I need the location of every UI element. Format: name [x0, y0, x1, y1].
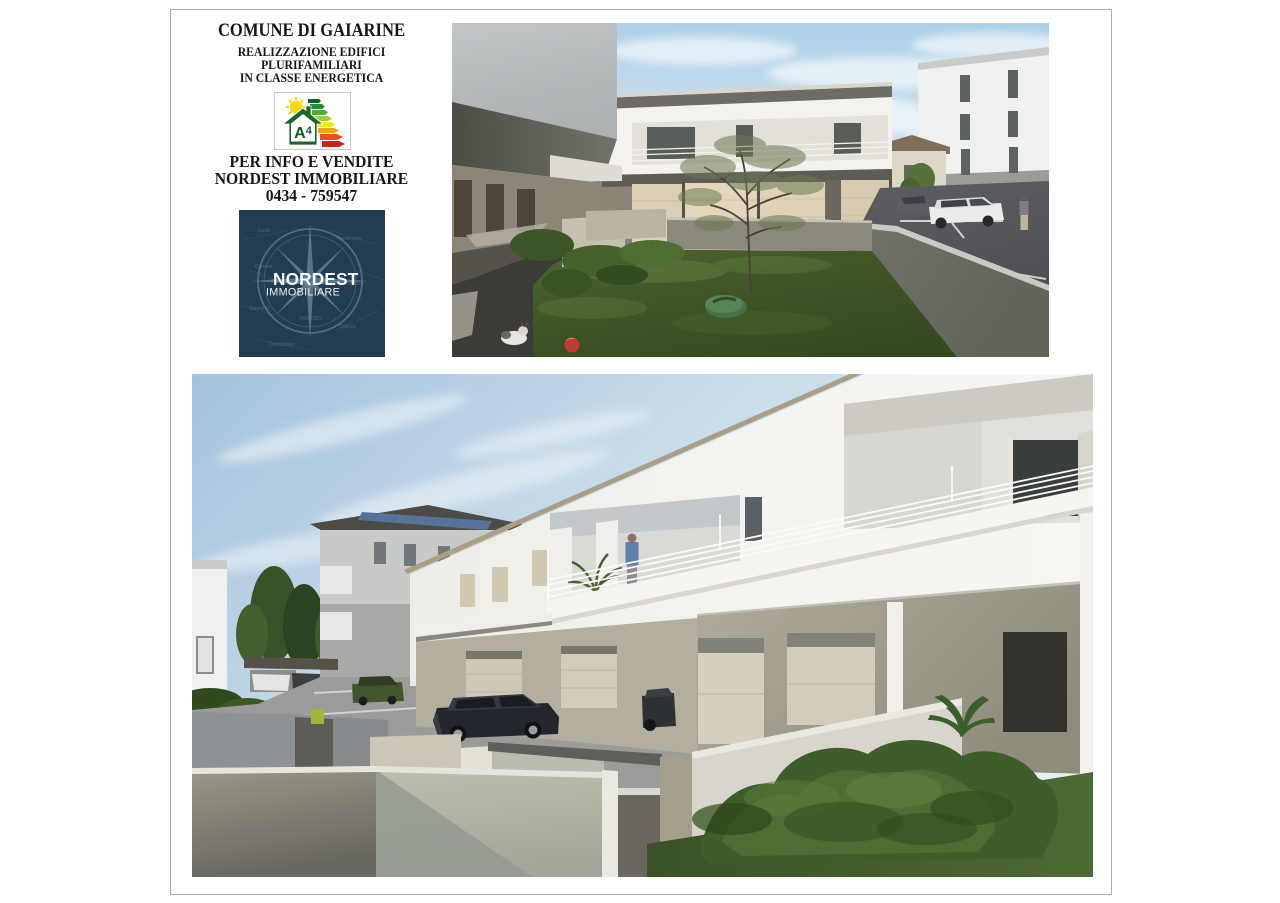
- svg-text:Oderzo: Oderzo: [339, 324, 356, 330]
- svg-text:Conegliano: Conegliano: [269, 342, 295, 348]
- svg-text:Caneva: Caneva: [255, 264, 272, 270]
- svg-text:IMMOBILIARE: IMMOBILIARE: [266, 287, 340, 299]
- svg-text:Sacile: Sacile: [257, 228, 271, 234]
